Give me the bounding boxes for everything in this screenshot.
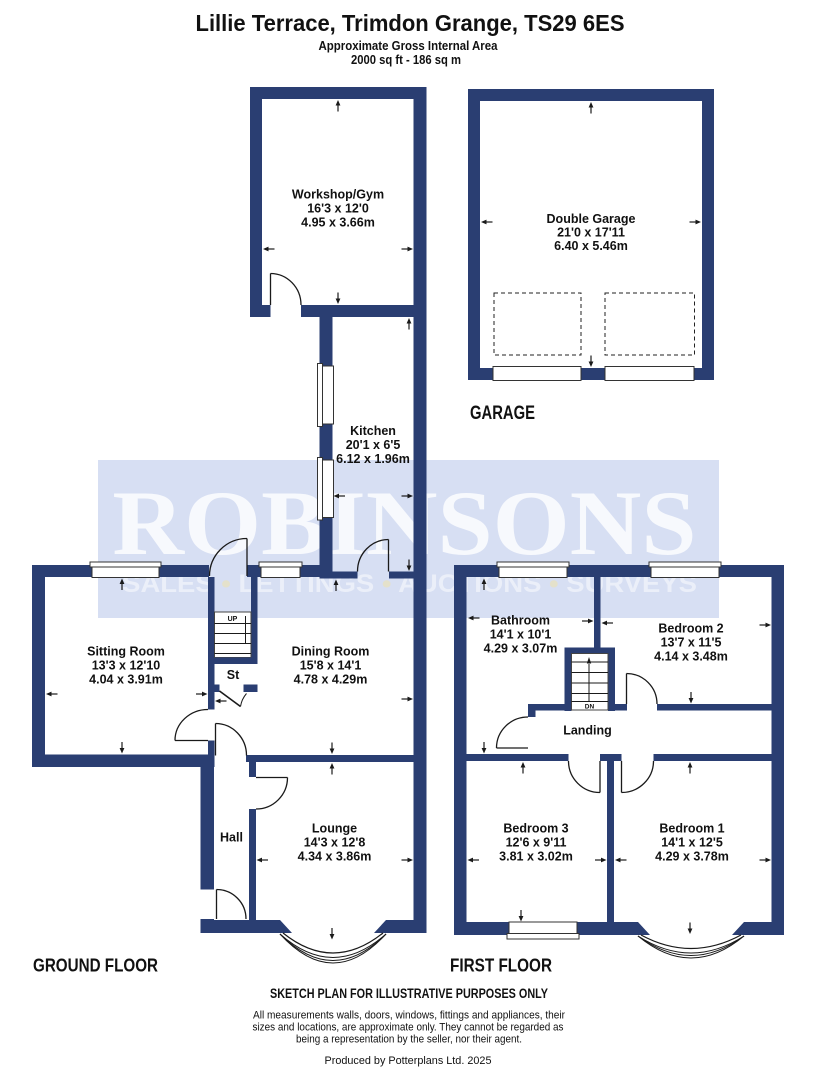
svg-text:ROBINSONS: ROBINSONS [112,472,696,574]
svg-text:21'0 x 17'11: 21'0 x 17'11 [557,226,625,240]
svg-text:UP: UP [228,616,238,623]
svg-text:being a representation by the: being a representation by the seller, no… [296,1034,522,1046]
svg-text:GROUND FLOOR: GROUND FLOOR [33,955,158,976]
svg-text:All measurements walls, doors,: All measurements walls, doors, windows, … [253,1010,565,1022]
svg-text:Sitting Room: Sitting Room [87,645,165,659]
svg-text:14'1 x 10'1: 14'1 x 10'1 [490,628,552,642]
svg-text:20'1 x 6'5: 20'1 x 6'5 [346,438,401,452]
svg-text:Lounge: Lounge [312,822,357,836]
svg-text:13'3 x 12'10: 13'3 x 12'10 [92,659,161,673]
svg-text:4.29 x 3.07m: 4.29 x 3.07m [484,642,558,656]
svg-text:12'6 x 9'11: 12'6 x 9'11 [506,836,567,850]
svg-text:Double Garage: Double Garage [547,212,636,226]
svg-text:St: St [227,668,240,682]
svg-text:14'1 x 12'5: 14'1 x 12'5 [661,836,723,850]
svg-text:6.12 x 1.96m: 6.12 x 1.96m [336,452,410,466]
svg-text:Bedroom 2: Bedroom 2 [658,622,723,636]
svg-text:Landing: Landing [563,724,612,738]
svg-text:4.34 x 3.86m: 4.34 x 3.86m [298,850,372,864]
svg-text:3.81 x 3.02m: 3.81 x 3.02m [499,850,573,864]
svg-text:Hall: Hall [220,831,243,845]
svg-text:Dining Room: Dining Room [292,645,370,659]
svg-text:DN: DN [585,704,595,711]
svg-text:4.95 x 3.66m: 4.95 x 3.66m [301,216,375,230]
svg-text:Lillie Terrace, Trimdon Grange: Lillie Terrace, Trimdon Grange, TS29 6ES [196,10,625,36]
svg-text:FIRST FLOOR: FIRST FLOOR [450,955,552,976]
svg-text:Bedroom 1: Bedroom 1 [659,822,724,836]
svg-text:4.04 x 3.91m: 4.04 x 3.91m [89,673,163,687]
svg-text:13'7 x 11'5: 13'7 x 11'5 [661,636,722,650]
svg-text:Kitchen: Kitchen [350,424,396,438]
svg-text:Bedroom 3: Bedroom 3 [503,822,568,836]
svg-text:Bathroom: Bathroom [491,614,550,628]
svg-text:4.29 x 3.78m: 4.29 x 3.78m [655,850,729,864]
svg-text:Approximate Gross Internal Are: Approximate Gross Internal Area [319,38,499,53]
svg-text:16'3 x 12'0: 16'3 x 12'0 [307,202,369,216]
svg-text:Produced by Potterplans Ltd. 2: Produced by Potterplans Ltd. 2025 [325,1055,492,1067]
svg-text:sizes and locations, are appro: sizes and locations, are approximate onl… [253,1022,565,1034]
svg-text:15'8 x 14'1: 15'8 x 14'1 [300,659,362,673]
svg-text:4.14 x 3.48m: 4.14 x 3.48m [654,650,728,664]
svg-text:4.78 x 4.29m: 4.78 x 4.29m [294,673,368,687]
svg-text:Workshop/Gym: Workshop/Gym [292,188,384,202]
svg-text:SKETCH PLAN FOR ILLUSTRATIVE P: SKETCH PLAN FOR ILLUSTRATIVE PURPOSES ON… [270,986,548,1001]
svg-text:6.40 x 5.46m: 6.40 x 5.46m [554,239,628,253]
svg-text:2000 sq ft - 186 sq m: 2000 sq ft - 186 sq m [351,52,461,67]
svg-text:14'3 x 12'8: 14'3 x 12'8 [304,836,366,850]
svg-text:GARAGE: GARAGE [470,402,535,424]
